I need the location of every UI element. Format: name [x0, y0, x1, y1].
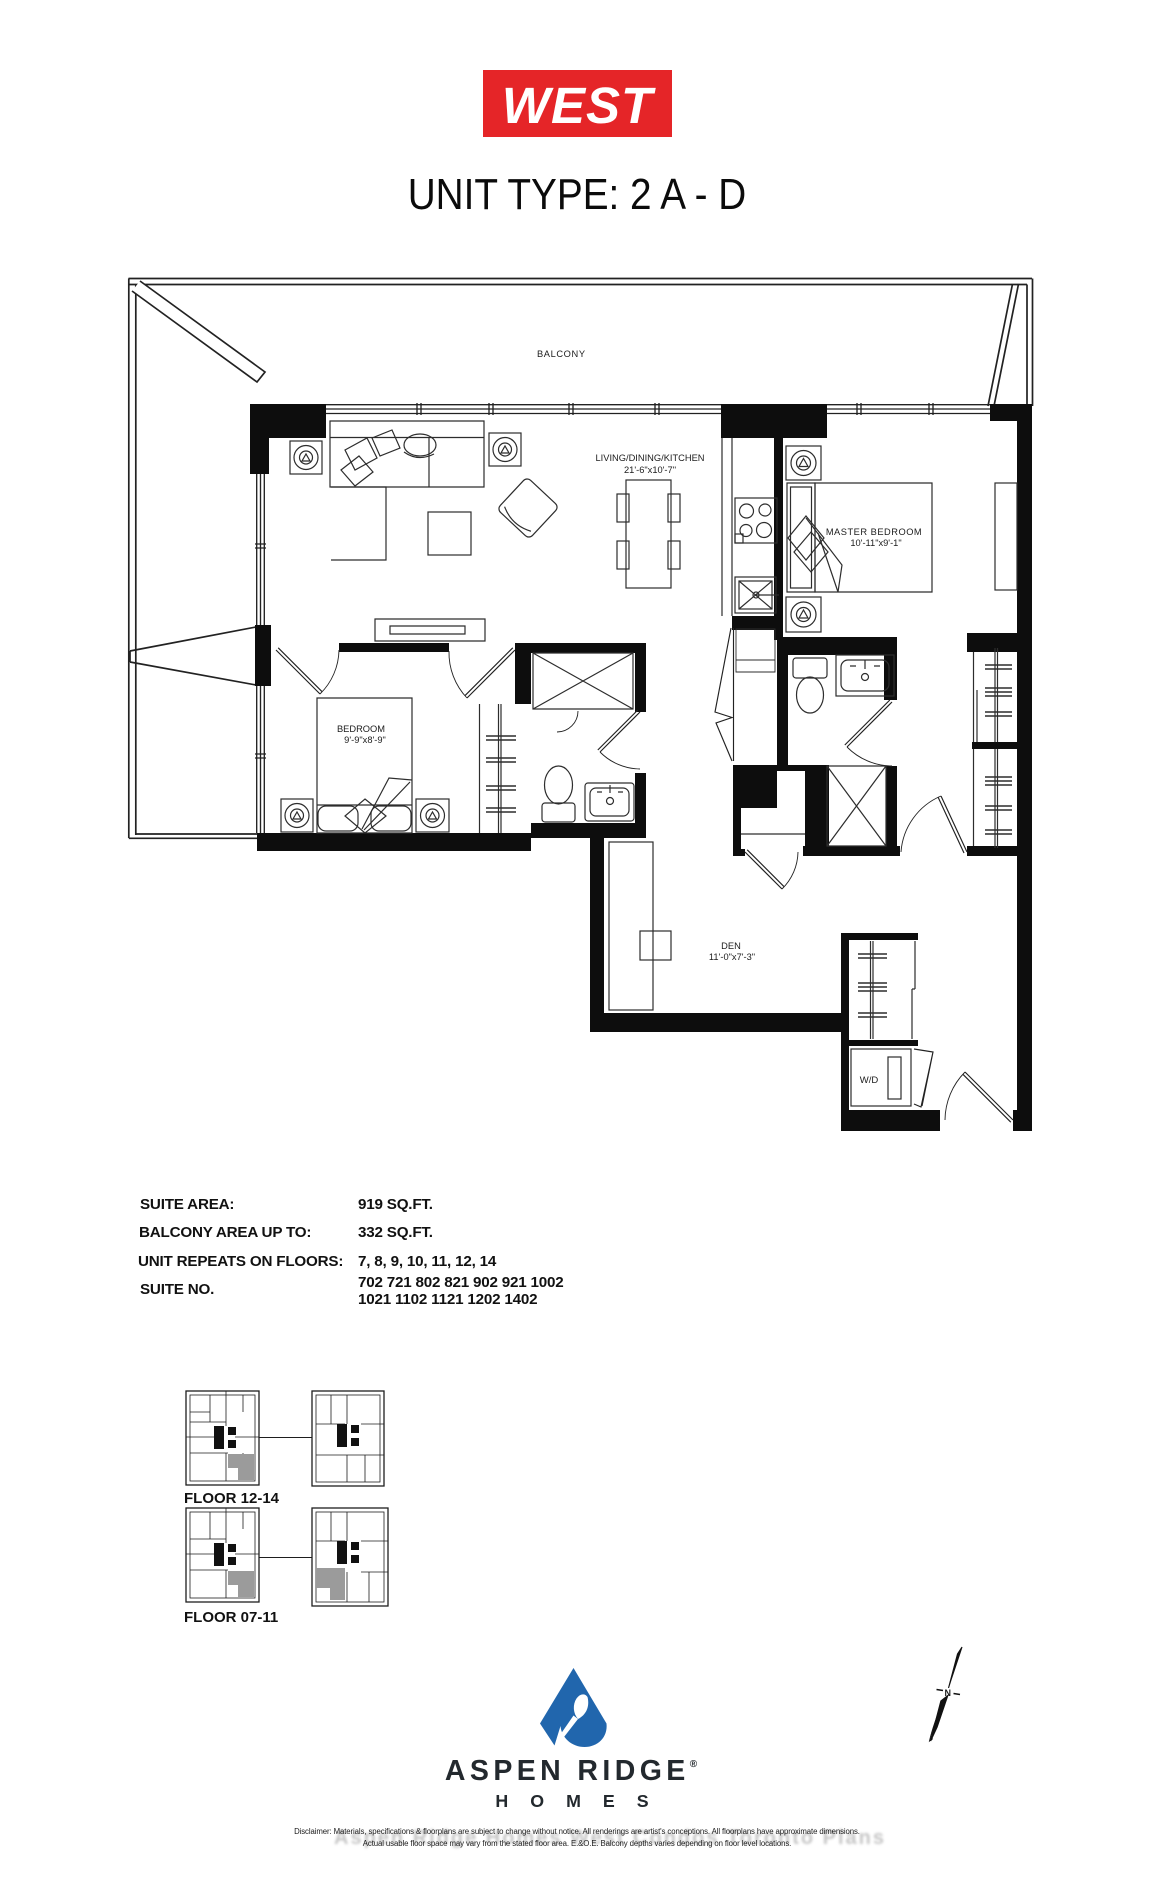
- svg-text:LIVING/DINING/KITCHEN: LIVING/DINING/KITCHEN: [596, 453, 705, 463]
- svg-text:BALCONY: BALCONY: [537, 349, 586, 359]
- svg-text:N: N: [945, 1688, 952, 1698]
- svg-text:11'-0"x7'-3": 11'-0"x7'-3": [709, 952, 755, 962]
- svg-text:W/D: W/D: [860, 1075, 879, 1086]
- svg-text:21'-6"x10'-7": 21'-6"x10'-7": [624, 465, 676, 475]
- svg-text:MASTER BEDROOM: MASTER BEDROOM: [826, 527, 922, 537]
- svg-text:DEN: DEN: [721, 941, 741, 951]
- svg-text:10'-11"x9'-1": 10'-11"x9'-1": [850, 538, 901, 548]
- svg-text:9'-9"x8'-9": 9'-9"x8'-9": [344, 735, 386, 745]
- svg-text:BEDROOM: BEDROOM: [337, 724, 385, 734]
